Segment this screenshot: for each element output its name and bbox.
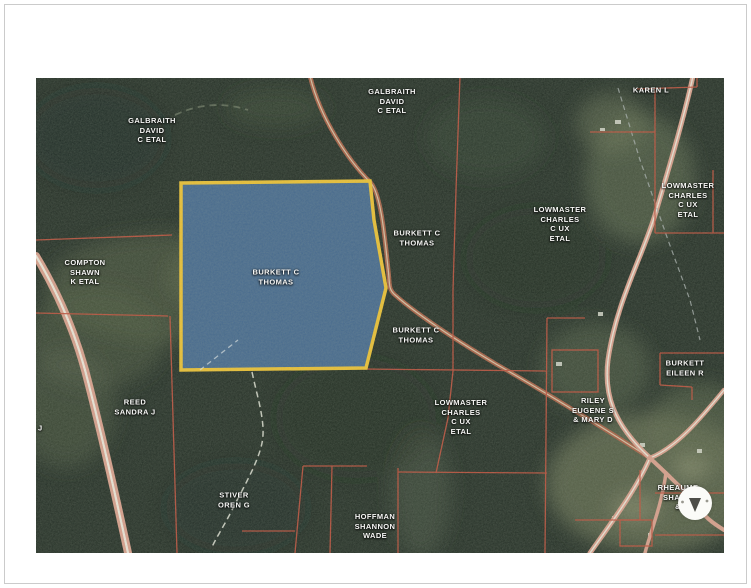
- texture-overlay-light: [36, 78, 724, 553]
- label-line: RILEY: [581, 396, 605, 406]
- label-line: CHARLES: [540, 215, 579, 225]
- parcel-label-lowmaster-east: LOWMASTER CHARLES C UX ETAL: [662, 181, 715, 219]
- label-line: EILEEN R: [666, 368, 704, 378]
- label-line: LOWMASTER: [534, 205, 587, 215]
- circle-pointer-icon[interactable]: [678, 486, 712, 520]
- label-line: ETAL: [451, 427, 472, 437]
- label-line: EUGENE S: [572, 405, 614, 415]
- label-line: C UX: [678, 200, 698, 210]
- label-line: KAREN L: [633, 85, 669, 95]
- parcel-label-galbraith-north: GALBRAITH DAVID C ETAL: [368, 87, 416, 116]
- label-line: THOMAS: [400, 238, 435, 248]
- label-line: GALBRAITH: [368, 87, 416, 97]
- pointer-arrow-icon: [678, 486, 712, 520]
- label-line: DAVID: [140, 125, 165, 135]
- parcel-label-burkett-thomas-highlight: BURKETT C THOMAS: [253, 268, 300, 287]
- parcel-label-edge-fragment: A J: [36, 423, 43, 433]
- parcel-label-hoffman: HOFFMAN SHANNON WADE: [355, 512, 396, 541]
- label-line: C UX: [451, 417, 471, 427]
- label-line: COMPTON: [65, 258, 106, 268]
- scanned-page: { "page": { "background": "#ffffff", "fr…: [0, 0, 751, 588]
- label-line: C UX: [550, 224, 570, 234]
- label-line: C ETAL: [378, 106, 407, 116]
- label-line: GALBRAITH: [128, 116, 176, 126]
- parcel-label-stiver: STIVER OREN G: [218, 491, 250, 510]
- label-line: LOWMASTER: [662, 181, 715, 191]
- parcel-label-riley: RILEY EUGENE S & MARY D: [572, 396, 614, 425]
- parcel-label-compton: COMPTON SHAWN K ETAL: [65, 258, 106, 287]
- label-line: STIVER: [219, 491, 249, 501]
- label-line: C ETAL: [138, 135, 167, 145]
- label-line: THOMAS: [259, 277, 294, 287]
- label-line: ETAL: [678, 210, 699, 220]
- parcel-label-lowmaster-south: LOWMASTER CHARLES C UX ETAL: [435, 398, 488, 436]
- label-line: CHARLES: [441, 408, 480, 418]
- label-line: BURKETT: [666, 359, 705, 369]
- map-canvas: [36, 78, 724, 553]
- label-line: HOFFMAN: [355, 512, 395, 522]
- label-line: WADE: [363, 531, 387, 541]
- label-line: SHAWN: [70, 267, 100, 277]
- label-line: LOWMASTER: [435, 398, 488, 408]
- label-line: K ETAL: [71, 277, 100, 287]
- label-line: DAVID: [380, 96, 405, 106]
- label-line: ETAL: [550, 234, 571, 244]
- label-line: REED: [124, 398, 146, 408]
- parcel-label-galbraith-west: GALBRAITH DAVID C ETAL: [128, 116, 176, 145]
- parcel-label-lowmaster-central: LOWMASTER CHARLES C UX ETAL: [534, 205, 587, 243]
- parcel-label-burkett-eileen: BURKETT EILEEN R: [666, 359, 705, 378]
- parcel-label-burkett-thomas-south: BURKETT C THOMAS: [393, 326, 440, 345]
- label-line: & MARY D: [573, 415, 613, 425]
- parcel-label-karen: KAREN L: [633, 85, 669, 95]
- label-line: SHANNON: [355, 521, 396, 531]
- label-line: BURKETT C: [253, 268, 300, 278]
- label-line: BURKETT C: [393, 326, 440, 336]
- label-line: SANDRA J: [114, 407, 155, 417]
- label-line: OREN G: [218, 500, 250, 510]
- aerial-parcel-map[interactable]: GALBRAITH DAVID C ETAL GALBRAITH DAVID C…: [36, 78, 724, 553]
- parcel-label-burkett-thomas-north: BURKETT C THOMAS: [394, 229, 441, 248]
- parcel-label-reed: REED SANDRA J: [114, 398, 155, 417]
- label-line: BURKETT C: [394, 229, 441, 239]
- label-line: CHARLES: [668, 191, 707, 201]
- label-line: THOMAS: [399, 335, 434, 345]
- label-line: A J: [36, 423, 43, 433]
